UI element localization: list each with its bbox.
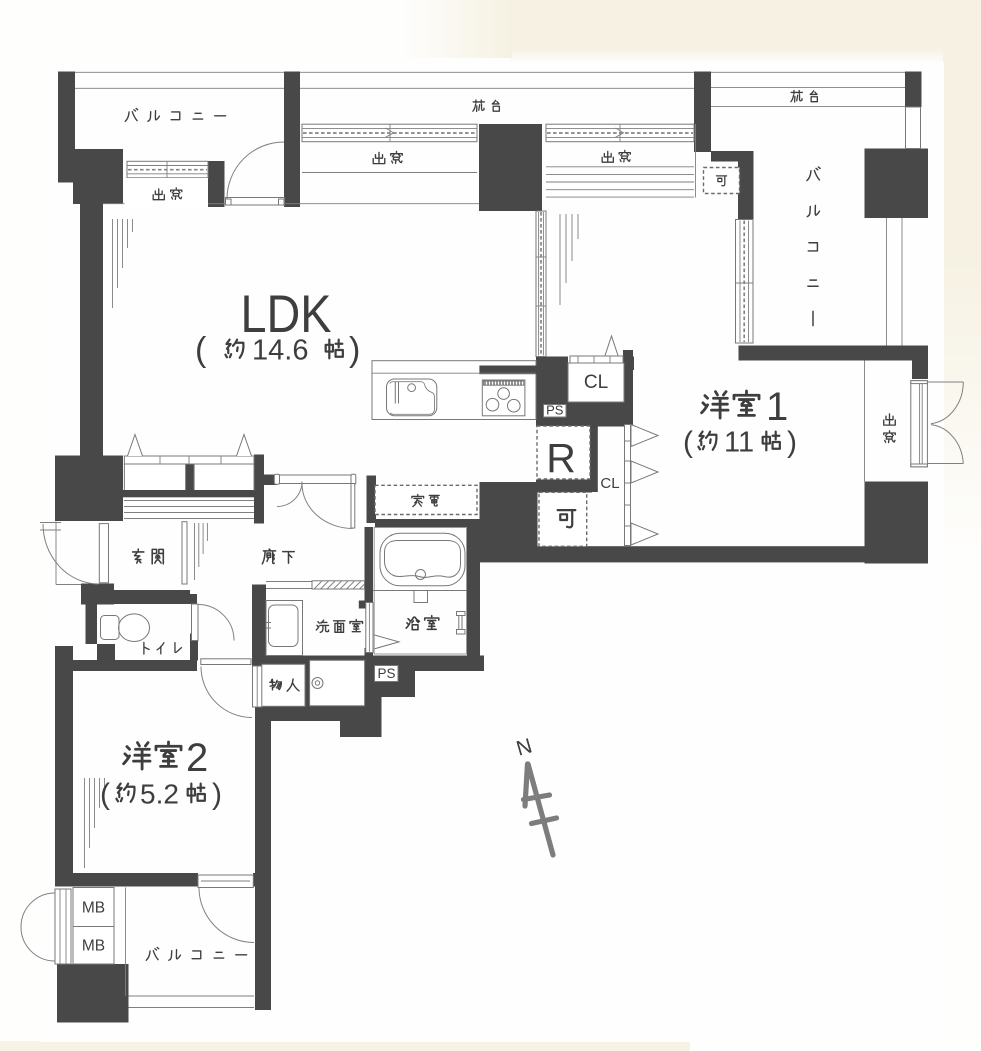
svg-text:11: 11: [724, 427, 754, 459]
svg-text:(: (: [100, 778, 110, 811]
svg-text:MB: MB: [82, 900, 105, 917]
svg-text:5.2: 5.2: [140, 779, 179, 810]
svg-text:14.6: 14.6: [252, 335, 308, 367]
svg-text:(: (: [683, 426, 693, 459]
svg-text:R: R: [546, 435, 576, 481]
svg-text:): ): [349, 331, 360, 369]
svg-text:MB: MB: [82, 938, 105, 955]
svg-text:CL: CL: [600, 475, 619, 492]
svg-text:CL: CL: [584, 372, 608, 393]
svg-text:PS: PS: [546, 403, 564, 418]
svg-text:2: 2: [186, 736, 208, 780]
svg-text:): ): [787, 426, 797, 459]
svg-text:1: 1: [766, 385, 788, 429]
svg-text:(: (: [195, 331, 207, 369]
svg-text:PS: PS: [377, 666, 395, 681]
svg-text:): ): [212, 778, 222, 811]
